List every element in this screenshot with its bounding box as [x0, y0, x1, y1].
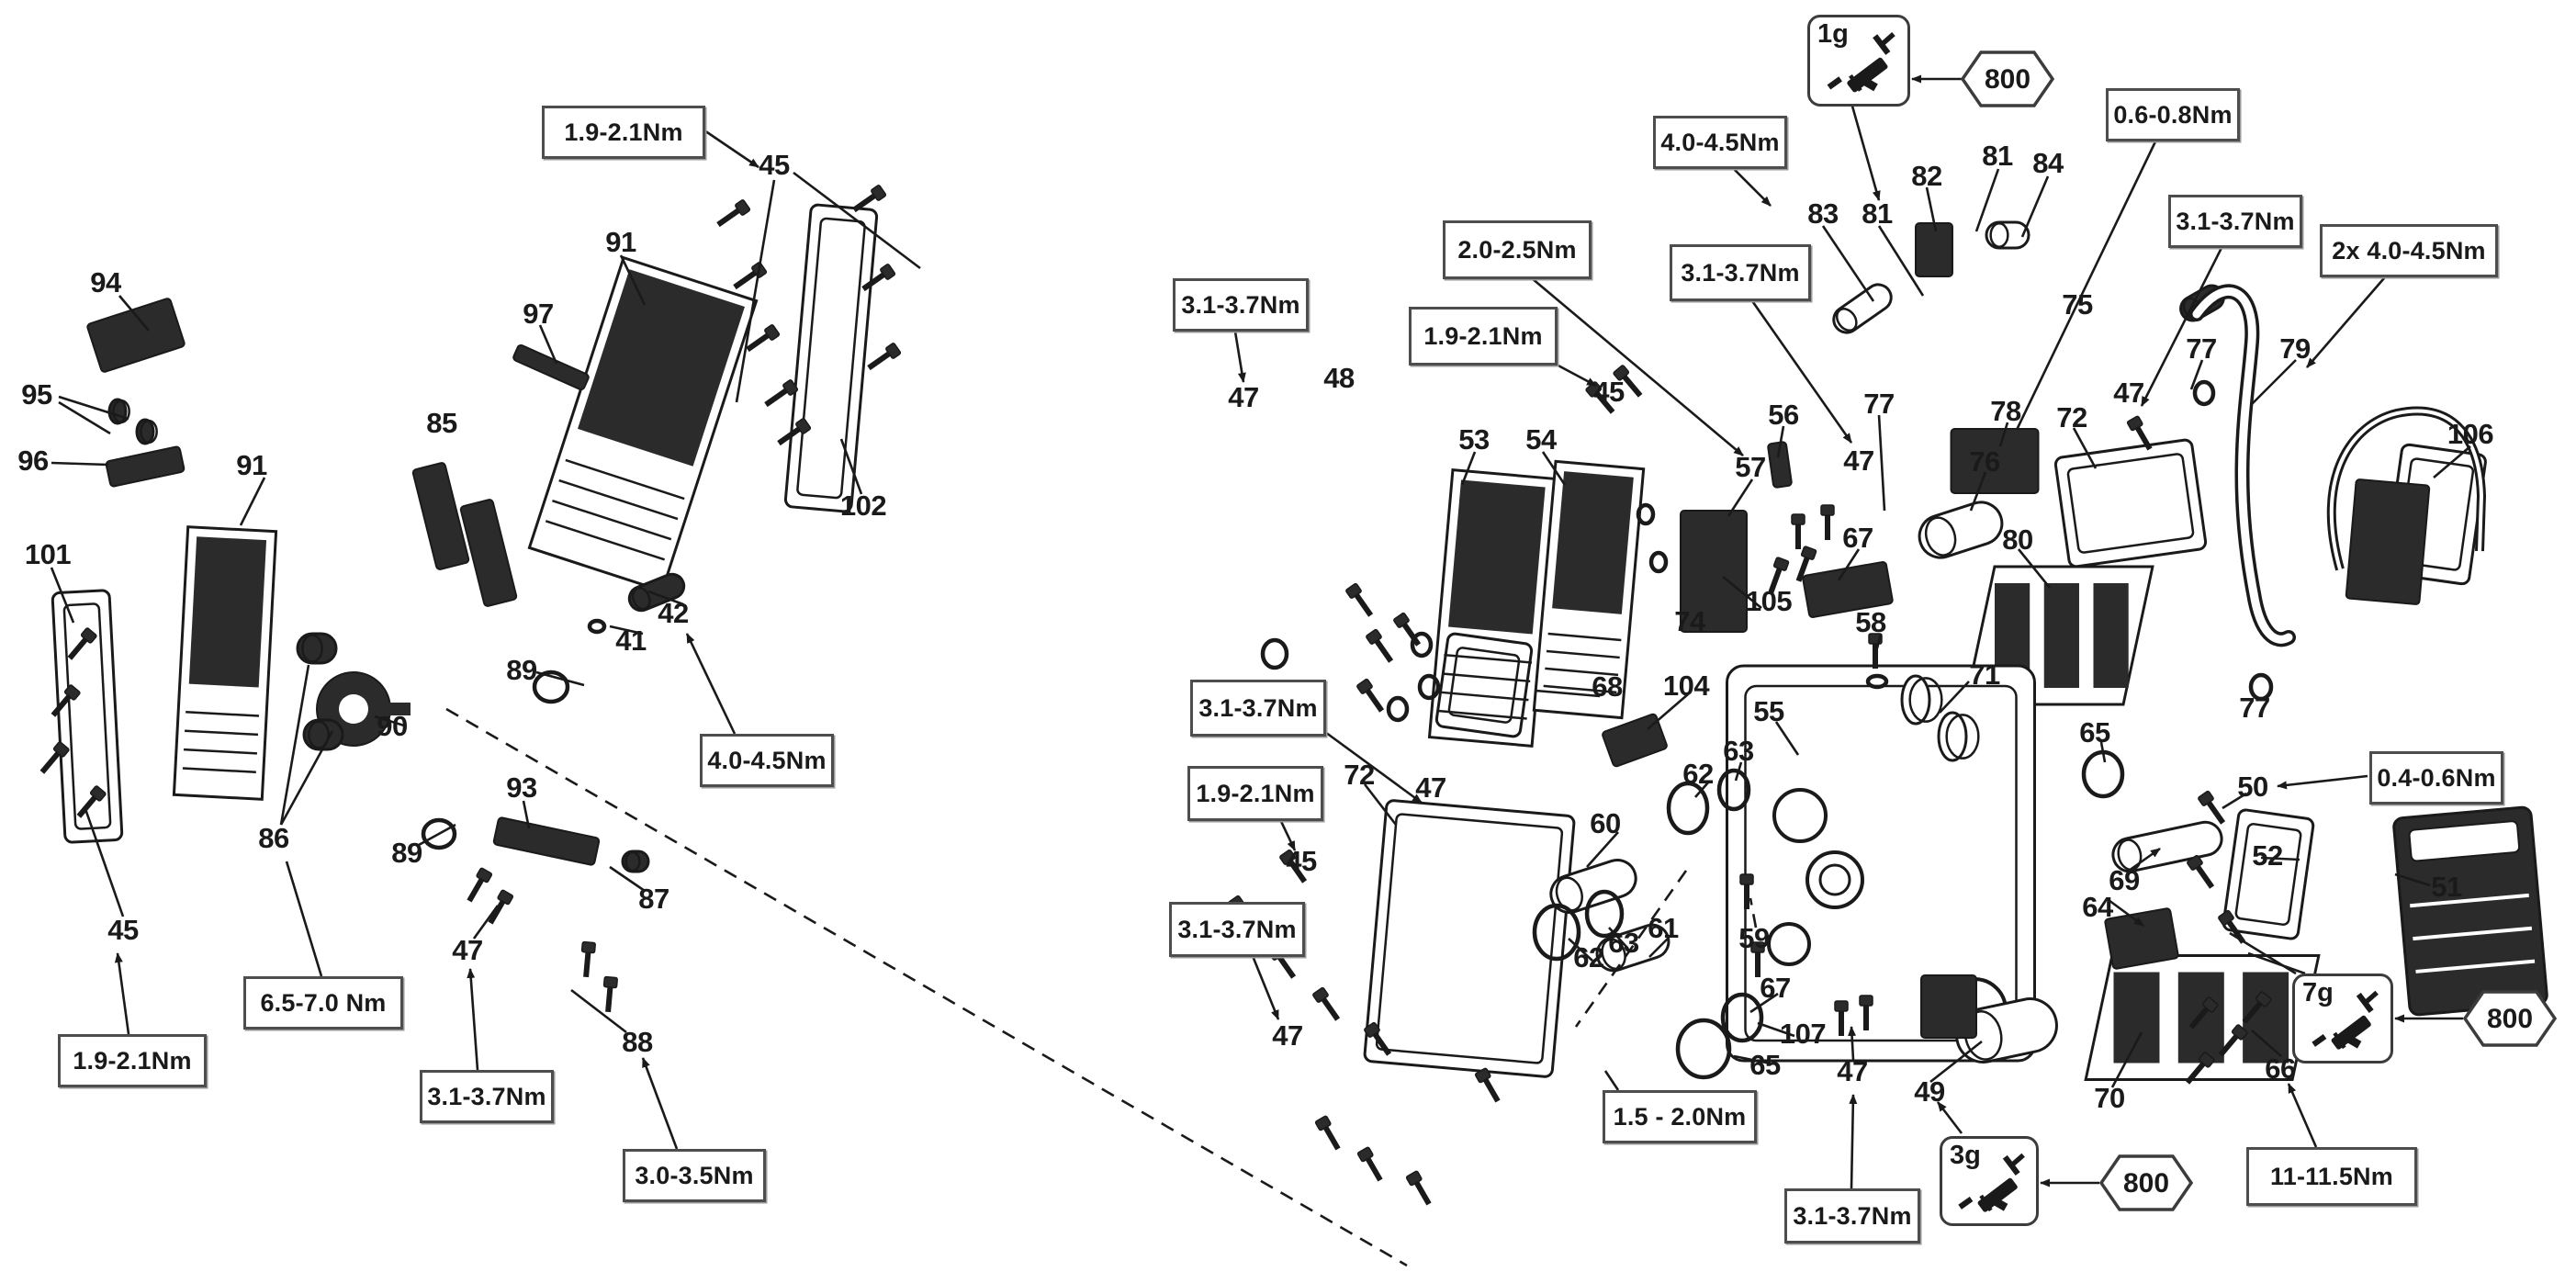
torque-spec-label: 0.4-0.6Nm [2369, 751, 2503, 805]
part-drawing [174, 527, 276, 800]
leader-line [241, 478, 264, 525]
leader-line [702, 129, 759, 167]
part-number: 47 [1228, 381, 1258, 414]
part-number: 60 [1590, 807, 1620, 840]
leader-line [793, 173, 920, 268]
part-number: 89 [391, 837, 422, 870]
part-number: 68 [1592, 670, 1622, 703]
part-number: 51 [2431, 871, 2461, 904]
torque-spec-label: 0.6-0.8Nm [2106, 88, 2240, 141]
part-number: 65 [2079, 716, 2109, 749]
part-number: 45 [759, 149, 789, 182]
part-number: 67 [1842, 522, 1873, 555]
leader-line [2278, 776, 2368, 786]
leader-line [1234, 326, 1243, 382]
part-number: 63 [1608, 927, 1638, 960]
leader-line [1879, 415, 1884, 511]
part-number: 82 [1911, 160, 1941, 193]
part-drawing [529, 258, 756, 591]
part-number: 107 [1780, 1018, 1826, 1051]
part-number: 47 [1843, 445, 1873, 478]
part-number: 45 [107, 914, 138, 947]
leader-line [2022, 176, 2048, 237]
parts-diagram: 800800800 1.9-2.1Nm6.5-7.0 Nm1.9-2.1Nm3.… [0, 0, 2576, 1283]
torque-spec-label: 3.1-3.7Nm [2168, 195, 2302, 248]
part-drawing [86, 298, 185, 373]
part-number: 47 [1837, 1055, 1867, 1088]
part-drawing [493, 817, 600, 866]
part-drawing [109, 400, 129, 423]
part-drawing [304, 720, 343, 749]
grease-tool-label: 1g [1817, 19, 1849, 50]
part-number: 75 [2062, 288, 2092, 321]
part-drawing [412, 462, 469, 569]
grease-tool-label: 3g [1950, 1141, 1981, 1171]
part-number: 62 [1682, 758, 1713, 791]
part-drawing [1651, 553, 1666, 571]
part-number: 86 [258, 822, 288, 855]
screw-drawing [73, 785, 106, 820]
leader-line [1605, 1071, 1618, 1090]
part-number: 72 [1344, 759, 1374, 792]
screw-drawing [1356, 679, 1387, 715]
leader-line [2142, 242, 2224, 406]
screw-drawing [1821, 505, 1834, 540]
part-number: 57 [1735, 451, 1765, 484]
torque-spec-label: 1.9-2.1Nm [1409, 307, 1558, 366]
hex-badge-number: 800 [2487, 1004, 2533, 1034]
part-number: 77 [1863, 388, 1894, 421]
torque-spec-label: 3.1-3.7Nm [1784, 1188, 1920, 1244]
part-number: 78 [1990, 395, 2020, 428]
part-number: 50 [2237, 771, 2267, 804]
part-drawing [785, 204, 877, 512]
torque-spec-label: 3.1-3.7Nm [420, 1070, 554, 1123]
screw-drawing [37, 741, 69, 776]
part-number: 59 [1738, 922, 1769, 955]
part-drawing [2105, 908, 2178, 970]
part-number: 41 [615, 625, 646, 658]
screw-drawing [860, 264, 895, 294]
part-number: 106 [2447, 418, 2493, 451]
leader-line [643, 1058, 677, 1149]
part-number: 93 [506, 771, 536, 805]
torque-spec-label: 1.9-2.1Nm [1187, 766, 1323, 821]
torque-spec-label: 4.0-4.5Nm [700, 734, 834, 787]
leader-line [1823, 226, 1873, 301]
part-number: 62 [1573, 941, 1603, 974]
screw-drawing [1357, 1147, 1386, 1184]
leader-line [118, 953, 129, 1034]
part-drawing [2195, 382, 2213, 404]
part-number: 77 [2239, 692, 2269, 725]
torque-spec-label: 3.0-3.5Nm [623, 1149, 766, 1202]
screw-drawing [1393, 613, 1423, 648]
part-number: 72 [2056, 401, 2087, 434]
screw-drawing [1345, 583, 1376, 619]
screw-drawing [48, 684, 80, 719]
part-drawing [2345, 479, 2429, 604]
torque-spec-label: 2.0-2.5Nm [1443, 220, 1592, 279]
part-drawing [2393, 806, 2548, 1015]
part-drawing [137, 420, 157, 444]
part-number: 81 [1982, 140, 2012, 173]
part-drawing [1535, 906, 1579, 959]
leader-line [1728, 163, 1771, 206]
part-number: 67 [1760, 972, 1790, 1005]
part-number: 88 [622, 1026, 652, 1059]
screw-drawing [714, 199, 750, 230]
grease-tool-box: 3g [1940, 1136, 2039, 1226]
part-number: 102 [840, 490, 886, 523]
part-number: 96 [17, 445, 48, 478]
screw-drawing [64, 627, 96, 662]
part-drawing [1921, 975, 1976, 1038]
part-number: 79 [2279, 332, 2310, 366]
torque-spec-label: 3.1-3.7Nm [1169, 902, 1305, 957]
leader-line [287, 861, 321, 976]
leader-line [59, 402, 110, 433]
part-drawing [1916, 223, 1952, 276]
part-number: 105 [1746, 585, 1792, 618]
leader-line [51, 463, 108, 465]
part-drawing [1389, 698, 1407, 720]
part-drawing [1828, 279, 1895, 337]
part-number: 91 [605, 226, 636, 259]
leader-line [687, 634, 735, 734]
screw-drawing [602, 976, 617, 1012]
part-drawing [1263, 640, 1287, 668]
part-number: 94 [90, 266, 120, 299]
part-number: 47 [452, 934, 482, 967]
part-number: 52 [2252, 839, 2282, 872]
part-drawing [460, 499, 517, 606]
part-number: 74 [1674, 605, 1704, 638]
part-number: 64 [2082, 891, 2112, 924]
screw-drawing [1315, 1116, 1344, 1153]
torque-spec-label: 2x 4.0-4.5Nm [2320, 224, 2498, 277]
part-number: 48 [1323, 362, 1354, 395]
hex-badge-number: 800 [1985, 64, 2030, 95]
part-drawing [2222, 809, 2314, 940]
part-number: 71 [1969, 658, 1999, 692]
screw-drawing [1366, 629, 1396, 665]
torque-spec-label: 3.1-3.7Nm [1190, 680, 1326, 737]
part-number: 53 [1458, 423, 1489, 456]
torque-spec-label: 6.5-7.0 Nm [243, 976, 403, 1030]
part-drawing [298, 634, 336, 663]
torque-spec-label: 11-11.5Nm [2246, 1147, 2417, 1206]
hex-badge-number: 800 [2123, 1168, 2169, 1199]
torque-spec-label: 1.9-2.1Nm [542, 106, 705, 159]
part-drawing [1678, 1020, 1729, 1077]
grease-tool-box: 7g [2292, 974, 2393, 1064]
screw-drawing [464, 868, 492, 905]
part-number: 84 [2032, 147, 2063, 180]
part-number: 87 [638, 883, 669, 916]
part-number: 49 [1914, 1075, 1944, 1109]
part-drawing [1364, 800, 1574, 1077]
leader-line [1851, 1095, 1853, 1188]
screw-drawing [1312, 987, 1343, 1023]
part-number: 45 [1286, 845, 1316, 878]
leader-line [84, 806, 123, 917]
screw-drawing [485, 890, 513, 927]
grease-tool-label: 7g [2302, 978, 2334, 1008]
part-number: 63 [1723, 735, 1753, 768]
leader-line [2289, 1084, 2316, 1147]
leader-line [2252, 360, 2296, 404]
part-number: 81 [1862, 197, 1892, 231]
torque-spec-label: 1.9-2.1Nm [58, 1034, 207, 1087]
part-number: 80 [2002, 523, 2032, 557]
screw-drawing [731, 262, 767, 292]
torque-spec-label: 1.5 - 2.0Nm [1603, 1090, 1757, 1143]
part-number: 65 [1749, 1049, 1780, 1082]
screw-drawing [1406, 1171, 1434, 1208]
part-number: 56 [1768, 399, 1798, 432]
torque-spec-label: 3.1-3.7Nm [1173, 278, 1309, 332]
part-number: 83 [1807, 197, 1838, 231]
screw-drawing [2187, 855, 2217, 891]
screw-drawing [579, 941, 595, 977]
part-number: 69 [2109, 864, 2139, 897]
part-number: 54 [1525, 423, 1556, 456]
torque-spec-label: 4.0-4.5Nm [1653, 116, 1787, 169]
part-number: 77 [2186, 332, 2216, 366]
screw-drawing [1792, 514, 1805, 549]
part-number: 66 [2265, 1052, 2295, 1086]
part-number: 61 [1648, 912, 1678, 945]
torque-spec-label: 3.1-3.7Nm [1670, 244, 1811, 301]
part-number: 89 [506, 654, 536, 687]
part-drawing [590, 621, 604, 632]
leader-line [2307, 272, 2390, 367]
part-number: 70 [2094, 1082, 2124, 1115]
part-number: 76 [1969, 445, 1999, 478]
part-number: 47 [2113, 377, 2143, 410]
part-number: 58 [1855, 606, 1885, 639]
part-number: 101 [25, 538, 71, 571]
part-number: 47 [1272, 1019, 1302, 1052]
part-number: 55 [1753, 695, 1783, 728]
part-number: 97 [523, 298, 553, 331]
leader-line [571, 990, 626, 1032]
part-drawing [623, 851, 648, 872]
leader-line [1251, 951, 1278, 1019]
part-number: 45 [1593, 376, 1624, 409]
part-number: 90 [377, 710, 407, 743]
leader-line [1851, 103, 1879, 200]
leader-line [470, 969, 478, 1070]
part-drawing [106, 446, 185, 487]
part-number: 85 [426, 407, 456, 440]
part-drawing [1914, 497, 2008, 563]
diagram-linework: 800800800 [0, 0, 2576, 1283]
part-drawing [2054, 439, 2206, 568]
part-number: 95 [21, 378, 51, 411]
part-number: 104 [1663, 670, 1709, 703]
part-number: 42 [658, 597, 688, 630]
part-number: 91 [236, 449, 266, 482]
grease-tool-box: 1g [1807, 15, 1910, 107]
screw-drawing [865, 343, 901, 373]
part-number: 47 [1415, 771, 1445, 805]
